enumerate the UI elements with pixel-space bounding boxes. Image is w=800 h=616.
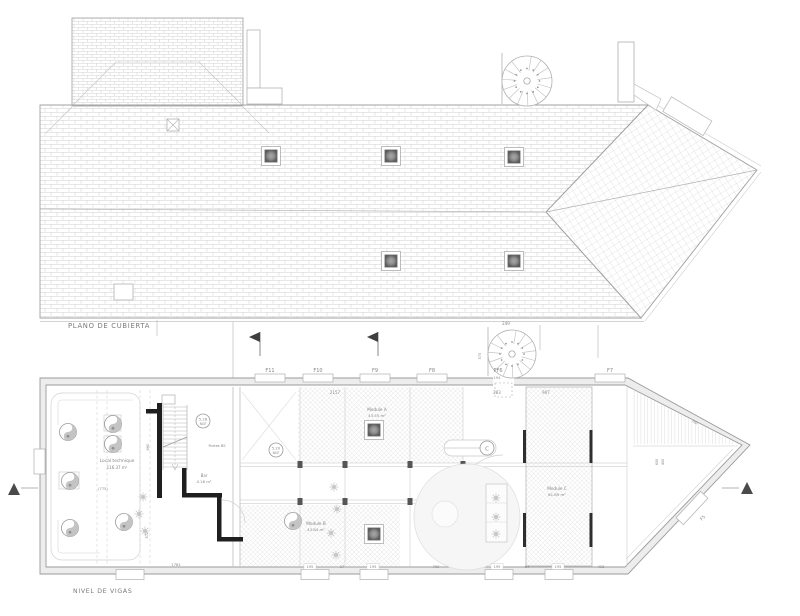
beam-level-plan: C F5 NIVEL DE VIGAS F11F10F9F8PF6F7Local… xyxy=(8,321,753,595)
flag-marker-icon xyxy=(367,332,378,356)
section-marker-icon xyxy=(722,482,753,494)
plant-icon xyxy=(333,505,342,514)
room-label: Bar xyxy=(201,473,208,478)
wedge-beam xyxy=(626,449,733,559)
dimension: 27 xyxy=(340,565,345,569)
dimension-label: 194 xyxy=(494,376,501,380)
roof-plan: PLANO DE CUBIERTA xyxy=(40,18,761,381)
skylight-icon xyxy=(365,421,384,440)
skylight-icon xyxy=(505,252,524,271)
window-opening xyxy=(485,570,513,580)
window-opening xyxy=(417,374,447,382)
plant-icon xyxy=(139,493,148,502)
dimension: (775) xyxy=(98,487,108,491)
east-wedge-zone xyxy=(633,389,737,444)
plant-icon xyxy=(135,510,144,519)
fan-icon xyxy=(105,436,122,453)
dimension: 194 xyxy=(494,376,501,380)
dimension-label: 283 xyxy=(493,390,501,395)
dimension-label: 1781 xyxy=(171,562,181,567)
dimension-label: 907 xyxy=(542,390,550,395)
section-marker-icon xyxy=(8,483,38,495)
room-label: Portes BS xyxy=(208,444,226,448)
dimension-label: 400 xyxy=(661,459,665,465)
window-label: F9 xyxy=(372,368,378,374)
window-label: F8 xyxy=(429,368,435,374)
window-opening xyxy=(360,374,390,382)
fan-icon xyxy=(60,424,77,441)
dimension: 195 xyxy=(367,564,379,570)
skylight-icon xyxy=(382,147,401,166)
roof-stack-base xyxy=(247,88,282,104)
dimension: 428 xyxy=(598,565,606,569)
room-label: Module B xyxy=(306,521,326,526)
level-marker: 5.28NGF xyxy=(196,414,210,428)
dimension: 84 xyxy=(525,565,530,569)
window-label: F11 xyxy=(265,368,274,374)
dimension: 660 xyxy=(146,443,150,451)
left-wall-window xyxy=(34,449,45,474)
window-opening xyxy=(116,570,144,580)
roof-stack-outline xyxy=(247,30,260,88)
level-datum: NGF xyxy=(273,451,280,455)
dimension: 1781 xyxy=(171,562,181,567)
room-label: 4.16 m² xyxy=(197,479,212,484)
plan-drawing: PLANO DE CUBIERTA xyxy=(0,0,800,616)
room-label: 116.37 m² xyxy=(107,465,128,470)
dimension: 195 xyxy=(552,564,564,570)
roof-hatch-icon xyxy=(167,119,179,131)
bar-core-walls xyxy=(146,403,243,542)
flag-marker-icon xyxy=(249,332,260,356)
dimension: 700 xyxy=(433,565,441,569)
reference-c: C xyxy=(444,440,496,456)
dimension: 575 xyxy=(478,353,482,360)
skylight-icon xyxy=(505,148,524,167)
drawing-sheet: PLANO DE CUBIERTA xyxy=(0,0,800,616)
level-marker: 5.20NGF xyxy=(269,443,283,457)
plant-icon xyxy=(330,483,339,492)
level-value: 5.28 xyxy=(199,418,208,422)
fan-icon xyxy=(285,513,302,530)
dimension-label: 195 xyxy=(494,565,501,569)
room-label: Module A xyxy=(367,407,387,412)
roof-plan-title: PLANO DE CUBIERTA xyxy=(68,322,150,330)
roof-spiral-staircase xyxy=(502,53,552,106)
dimension-label: 84 xyxy=(525,565,530,569)
skylight-icon xyxy=(382,252,401,271)
fan-icon xyxy=(62,473,79,490)
window-opening xyxy=(545,570,573,580)
room-label: Local technique xyxy=(100,458,135,464)
dimension-label: 660 xyxy=(146,443,150,451)
dimension-label: 27 xyxy=(340,565,345,569)
chimney xyxy=(618,42,634,102)
fan-icon xyxy=(116,514,133,531)
skylight-icon xyxy=(262,147,281,166)
window-opening xyxy=(255,374,285,382)
dimension-label: 2157 xyxy=(330,390,341,395)
room-label: 61.89 m² xyxy=(548,492,566,497)
dimension-label: (775) xyxy=(98,487,108,491)
dimension: 283 xyxy=(493,390,501,395)
window-label: F10 xyxy=(313,368,322,374)
dimension-label: 249 xyxy=(502,321,510,326)
plant-icon xyxy=(332,551,341,560)
dimension: 2157 xyxy=(330,390,341,395)
staircase xyxy=(162,395,187,470)
window-opening xyxy=(360,570,388,580)
dimension: 249 xyxy=(502,321,510,326)
spiral-stair-icon xyxy=(502,53,552,106)
fan-icon xyxy=(105,416,122,433)
dimension-label: 195 xyxy=(555,565,562,569)
plant-icon xyxy=(492,530,501,539)
window-f5: F5 xyxy=(676,491,717,533)
dimension: 195 xyxy=(304,564,316,570)
dimension-label: 700 xyxy=(433,565,441,569)
dimension-label: 195 xyxy=(307,565,314,569)
dimension-label: 195 xyxy=(370,565,377,569)
room-label: 43.84 m² xyxy=(307,527,325,532)
plant-icon xyxy=(492,513,501,522)
dimension: 600 xyxy=(655,459,659,465)
room-label: Module C xyxy=(547,486,567,491)
dimension: 400 xyxy=(661,459,665,465)
room-label: 43.55 m² xyxy=(368,413,386,418)
level-datum: NGF xyxy=(200,422,207,426)
floor-plan-title: NIVEL DE VIGAS xyxy=(73,588,132,595)
window-opening xyxy=(301,570,329,580)
plant-icon xyxy=(327,529,336,538)
dimension-label: 428 xyxy=(598,565,606,569)
fan-icon xyxy=(62,520,79,537)
window-label: PF6 xyxy=(493,368,502,374)
dimension: 195 xyxy=(491,564,503,570)
plant-icon xyxy=(141,527,150,536)
module-c-zone xyxy=(526,387,592,566)
window-f5-label: F5 xyxy=(699,514,707,522)
dimension: 907 xyxy=(542,390,550,395)
level-value: 5.20 xyxy=(272,447,281,451)
plant-icon xyxy=(492,494,501,503)
dimension-label: 600 xyxy=(655,459,659,465)
window-label: F7 xyxy=(607,368,613,374)
window-opening xyxy=(303,374,333,382)
roof-opening xyxy=(114,284,133,300)
floor-motif xyxy=(432,501,458,527)
skylight-icon xyxy=(365,525,384,544)
window-opening xyxy=(595,374,625,382)
reference-c-label: C xyxy=(485,447,489,453)
dimension-label: 575 xyxy=(478,353,482,360)
